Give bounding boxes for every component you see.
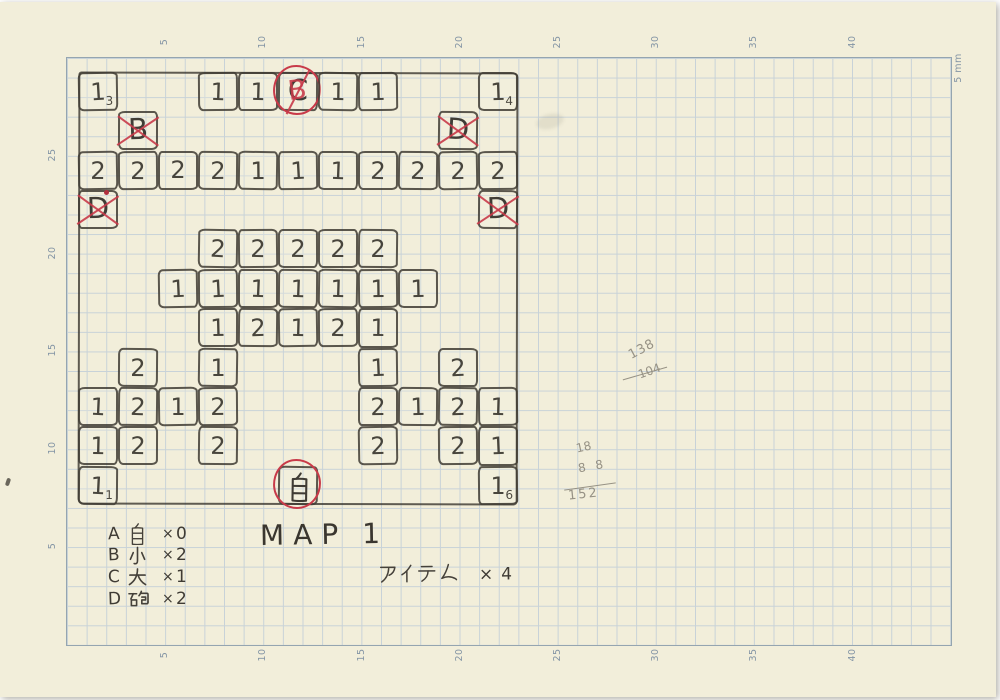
- map-cell: 1: [358, 347, 398, 387]
- items-note-label-text: アイテム: [471, 562, 472, 563]
- map-cell: 2: [438, 426, 478, 466]
- legend-row-b: B 小 × 2: [100, 545, 187, 567]
- map-cell: 2: [478, 151, 518, 191]
- map-cell: 1: [318, 151, 358, 191]
- cell-value: 1: [200, 310, 237, 346]
- ruler-label: 25: [550, 33, 564, 51]
- ruler-label: 15: [45, 341, 59, 359]
- map-cell: 2: [358, 229, 398, 269]
- map-cell: D: [78, 190, 118, 229]
- cell-value: 2: [439, 428, 476, 465]
- cell-value: 1: [200, 349, 236, 384]
- ruler-label: 20: [452, 33, 466, 51]
- ruler-label: 5: [157, 33, 171, 51]
- cell-value: 2: [120, 153, 156, 189]
- cell-value: 1: [319, 270, 356, 306]
- cell-value: 2: [440, 152, 477, 188]
- map-cell: 1: [358, 269, 398, 309]
- legend-count: 1: [176, 567, 187, 587]
- ruler-label: 40: [845, 33, 859, 51]
- map-cell: 2: [438, 347, 478, 387]
- map-cell: 2: [358, 387, 398, 426]
- cell-value: 2: [280, 231, 316, 267]
- map-cell: 2: [78, 150, 119, 190]
- cell-value: 1: [279, 270, 316, 307]
- ruler-label: 25: [550, 646, 564, 664]
- map-cell: 16: [478, 465, 518, 505]
- scribble-text: 8 8: [577, 457, 607, 476]
- cell-value: 1: [360, 74, 397, 110]
- scribble-text: 104: [636, 361, 662, 382]
- cell-value: 2: [80, 152, 116, 188]
- cell-value: 2: [239, 310, 276, 346]
- cell-value: 1: [320, 74, 357, 110]
- map-cell: 1: [398, 387, 438, 427]
- cell-value: 2: [360, 389, 396, 425]
- map-cell: CB: [278, 72, 318, 112]
- cell-value: 2: [200, 153, 236, 189]
- map-cell: 2: [278, 229, 318, 269]
- cell-value: 1: [400, 270, 437, 306]
- ruler-label: 35: [746, 646, 760, 664]
- map-cell: 2: [118, 151, 158, 191]
- ruler-label: 10: [255, 33, 269, 51]
- cell-value: 1: [400, 389, 437, 425]
- cell-value: 1: [199, 270, 237, 307]
- kanji-dai-large-icon: 大: [128, 567, 162, 586]
- cell-value: 1: [239, 270, 276, 307]
- map-cell: 1: [278, 269, 318, 309]
- map-cell: 1: [358, 308, 398, 347]
- cell-subscript: 6: [505, 488, 513, 502]
- ruler-label: 10: [255, 646, 269, 664]
- map-cell: 1: [238, 269, 278, 308]
- cell-value: 1: [279, 152, 317, 189]
- map-title-word: MAP: [260, 518, 348, 553]
- cell-value: 2: [360, 231, 396, 266]
- graph-paper: 1311CB1114BD22221112222DD222221111111121…: [0, 2, 996, 697]
- map-cell: 2: [398, 150, 438, 190]
- cell-value: 2: [359, 152, 396, 189]
- map-cell: 1: [198, 72, 238, 112]
- cell-value: 2: [200, 428, 236, 464]
- map-cell: 1: [78, 426, 118, 466]
- cell-value: 1: [159, 270, 196, 307]
- map-cell: 2: [238, 308, 278, 348]
- cell-value: 1: [319, 152, 356, 189]
- map-cell: 1: [238, 150, 279, 190]
- cell-subscript: 3: [105, 94, 113, 108]
- map-cell: 2: [158, 151, 198, 190]
- legend-row-c: C 大 × 1: [100, 566, 187, 588]
- map-cell: 14: [478, 72, 518, 112]
- ruler-label: 20: [45, 244, 59, 262]
- kanji-ji-self-icon: 自: [128, 523, 162, 545]
- cell-value: 2: [359, 428, 396, 464]
- map-cell: 1: [478, 387, 518, 427]
- legend-count: 2: [176, 589, 187, 609]
- ruler-label: 30: [648, 646, 662, 664]
- map-cell: D: [438, 111, 478, 151]
- map-title: MAP 1: [260, 517, 381, 552]
- ruler-label: 10: [45, 439, 59, 457]
- map-cell: 13: [78, 72, 119, 112]
- map-cell: 2: [198, 387, 238, 427]
- map-cell: 2: [118, 387, 158, 427]
- cell-value: 1: [479, 388, 516, 424]
- multiply-sign: ×: [162, 547, 176, 563]
- map-cell: 1: [278, 150, 318, 190]
- scribble-text: 18: [575, 439, 593, 456]
- map-cell: 2: [358, 426, 399, 466]
- cell-value: 1: [360, 271, 396, 307]
- ruler-label: 35: [746, 33, 760, 51]
- ruler-label: 15: [354, 33, 368, 51]
- map-cell: 1: [398, 269, 438, 309]
- cell-value: 1: [240, 74, 277, 110]
- map-cell: 2: [198, 151, 238, 191]
- legend: A 自 × 0 B: [100, 523, 187, 609]
- map-cell: 11: [78, 465, 118, 505]
- map-cell: B: [118, 111, 158, 151]
- cell-value: 1: [160, 389, 196, 424]
- pencil-scribble-2: 18 8 8 152: [562, 434, 634, 504]
- cell-value: 2: [160, 153, 196, 188]
- ruler-label: 5: [157, 646, 171, 664]
- hand-drawn-map: 1311CB1114BD22221112222DD222221111111121…: [78, 72, 518, 505]
- multiply-sign: ×: [162, 569, 176, 585]
- ruler-label: 40: [845, 646, 859, 664]
- multiply-sign: ×: [162, 591, 176, 607]
- map-cell: 1: [198, 308, 238, 348]
- legend-letter: C: [108, 567, 129, 588]
- map-cell: 1: [198, 269, 238, 309]
- cell-value: 1: [479, 427, 516, 464]
- map-cell: 2: [318, 229, 358, 269]
- map-cell: 1: [358, 72, 398, 112]
- cell-value: 2: [400, 152, 437, 188]
- map-cell: 1: [198, 347, 239, 387]
- map-cell: 2: [358, 151, 398, 191]
- map-cell: 1: [78, 387, 118, 427]
- multiply-sign: ×: [479, 565, 493, 585]
- cell-value: 1: [280, 310, 317, 346]
- map-cell: 1: [158, 268, 199, 308]
- cell-value: 2: [439, 349, 477, 386]
- cell-value: 1: [359, 349, 396, 386]
- cell-value: 2: [200, 389, 236, 425]
- cell-value: 2: [240, 231, 277, 267]
- legend-count: 2: [176, 545, 187, 565]
- map-cell: 1: [238, 72, 278, 111]
- legend-count: 0: [176, 524, 187, 544]
- cell-value: 2: [119, 388, 156, 425]
- kanji-hou-cannon-icon: 砲: [128, 589, 162, 608]
- scanned-graph-paper-page: 1311CB1114BD22221112222DD222221111111121…: [0, 0, 1000, 700]
- cell-value: 2: [480, 152, 517, 188]
- map-cell: 2: [198, 426, 238, 466]
- map-cell: 2: [118, 347, 158, 387]
- cell-subscript: 4: [505, 94, 513, 108]
- cell-value: 2: [320, 310, 357, 346]
- map-cell: 2: [118, 426, 158, 466]
- ruler-label: 15: [354, 646, 368, 664]
- cell-value: 1: [80, 428, 117, 464]
- cell-value: 1: [360, 310, 396, 346]
- map-cell: 1: [318, 268, 359, 308]
- cell-value: 2: [120, 349, 156, 385]
- cell-value: 1: [79, 388, 117, 425]
- legend-row-a: A 自 × 0: [100, 523, 187, 545]
- cell-value: 1: [240, 152, 276, 188]
- cell-subscript: 1: [105, 488, 113, 502]
- map-cell: 2: [198, 229, 239, 269]
- cell-value: 2: [120, 428, 157, 464]
- ruler-label: 30: [648, 33, 662, 51]
- cell-value: 2: [440, 388, 477, 424]
- map-cell: 1: [318, 72, 359, 112]
- katakana-item-icon: アイテム: [379, 562, 471, 589]
- map-cell: D: [478, 190, 518, 230]
- map-cell: 1: [158, 387, 199, 427]
- map-cell: 2: [438, 150, 479, 190]
- cell-value: 2: [320, 231, 356, 267]
- map-cell: 1: [278, 308, 319, 348]
- legend-letter: D: [108, 588, 129, 609]
- legend-row-d: D 砲 × 2: [100, 588, 187, 610]
- map-title-number: 1: [362, 517, 380, 550]
- map-cell: 自: [278, 465, 319, 505]
- legend-letter: B: [108, 545, 129, 566]
- ruler-label: 20: [452, 646, 466, 664]
- items-note: アイテム × 4: [379, 561, 512, 588]
- legend-letter: A: [108, 523, 129, 544]
- map-cell: 2: [238, 229, 278, 269]
- map-cell: 2: [318, 308, 358, 348]
- cell-value: 2: [199, 230, 237, 267]
- map-cell: 2: [438, 387, 479, 427]
- map-cell: 1: [478, 426, 518, 465]
- items-count: 4: [501, 564, 512, 584]
- ink-fleck: [5, 478, 11, 487]
- scribble-text: 152: [567, 485, 599, 503]
- multiply-sign: ×: [162, 526, 176, 542]
- ruler-label: 25: [45, 146, 59, 164]
- ruler-label: 5 mm: [951, 51, 965, 85]
- scribble-text: 138: [626, 336, 658, 362]
- cell-value: 1: [199, 73, 236, 110]
- pencil-scribble-1: 138 104: [618, 337, 688, 393]
- ruler-label: 5: [45, 537, 59, 555]
- kanji-sho-small-icon: 小: [128, 546, 162, 565]
